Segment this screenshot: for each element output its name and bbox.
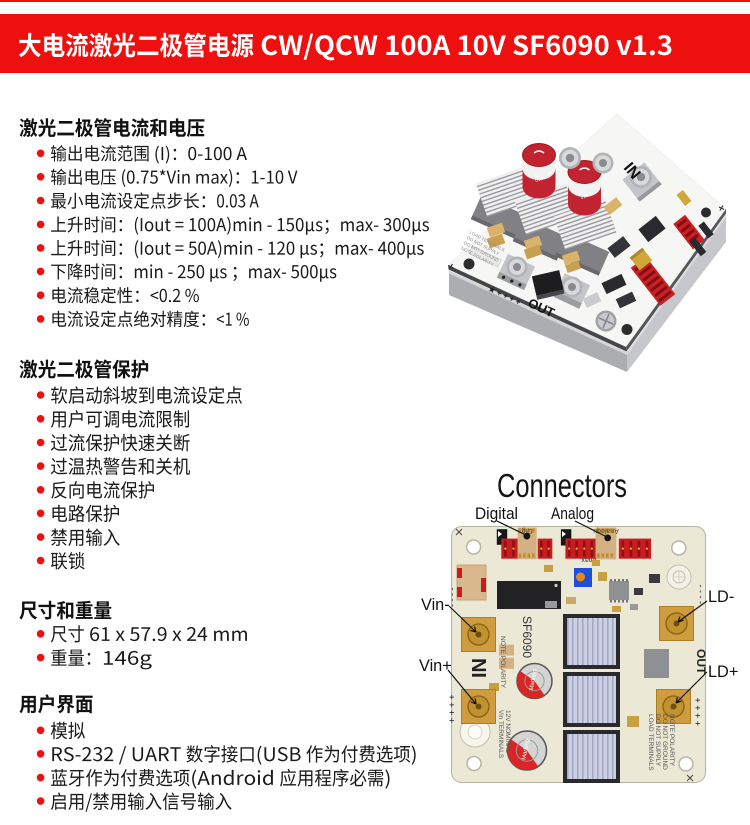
svg-text:12V NOMINAL: 12V NOMINAL	[504, 710, 511, 753]
svg-text:+ + + +: + + + +	[447, 694, 457, 723]
svg-text:NOTE POLARITY: NOTE POLARITY	[668, 714, 675, 767]
svg-text:Analoqu: Analoqu	[593, 527, 619, 534]
svg-text:LD-: LD-	[708, 588, 734, 606]
svg-text:NOTE POLARITY: NOTE POLARITY	[499, 636, 506, 689]
svg-text:Vin TERMINALS: Vin TERMINALS	[497, 710, 504, 759]
svg-text:OUT: OUT	[694, 649, 708, 675]
svg-text:LOAD TERMINALS: LOAD TERMINALS	[647, 714, 654, 771]
svg-text:Connectors: Connectors	[497, 467, 627, 504]
svg-text:SF6090: SF6090	[520, 616, 534, 658]
svg-text:LD+: LD+	[708, 663, 738, 681]
svg-text:Vin-: Vin-	[421, 596, 450, 614]
svg-text:IN: IN	[469, 658, 491, 678]
svg-text:+ + + +: + + + +	[693, 697, 703, 726]
svg-text:Digital: Digital	[475, 505, 518, 523]
svg-text:DO NOT SUPPLY: DO NOT SUPPLY	[654, 714, 661, 767]
svg-text:DO NOT GROUND: DO NOT GROUND	[661, 714, 668, 770]
svg-text:Analog: Analog	[551, 505, 594, 523]
svg-text:- - - -: - - - -	[695, 585, 705, 605]
svg-text:Vin+: Vin+	[419, 657, 452, 675]
